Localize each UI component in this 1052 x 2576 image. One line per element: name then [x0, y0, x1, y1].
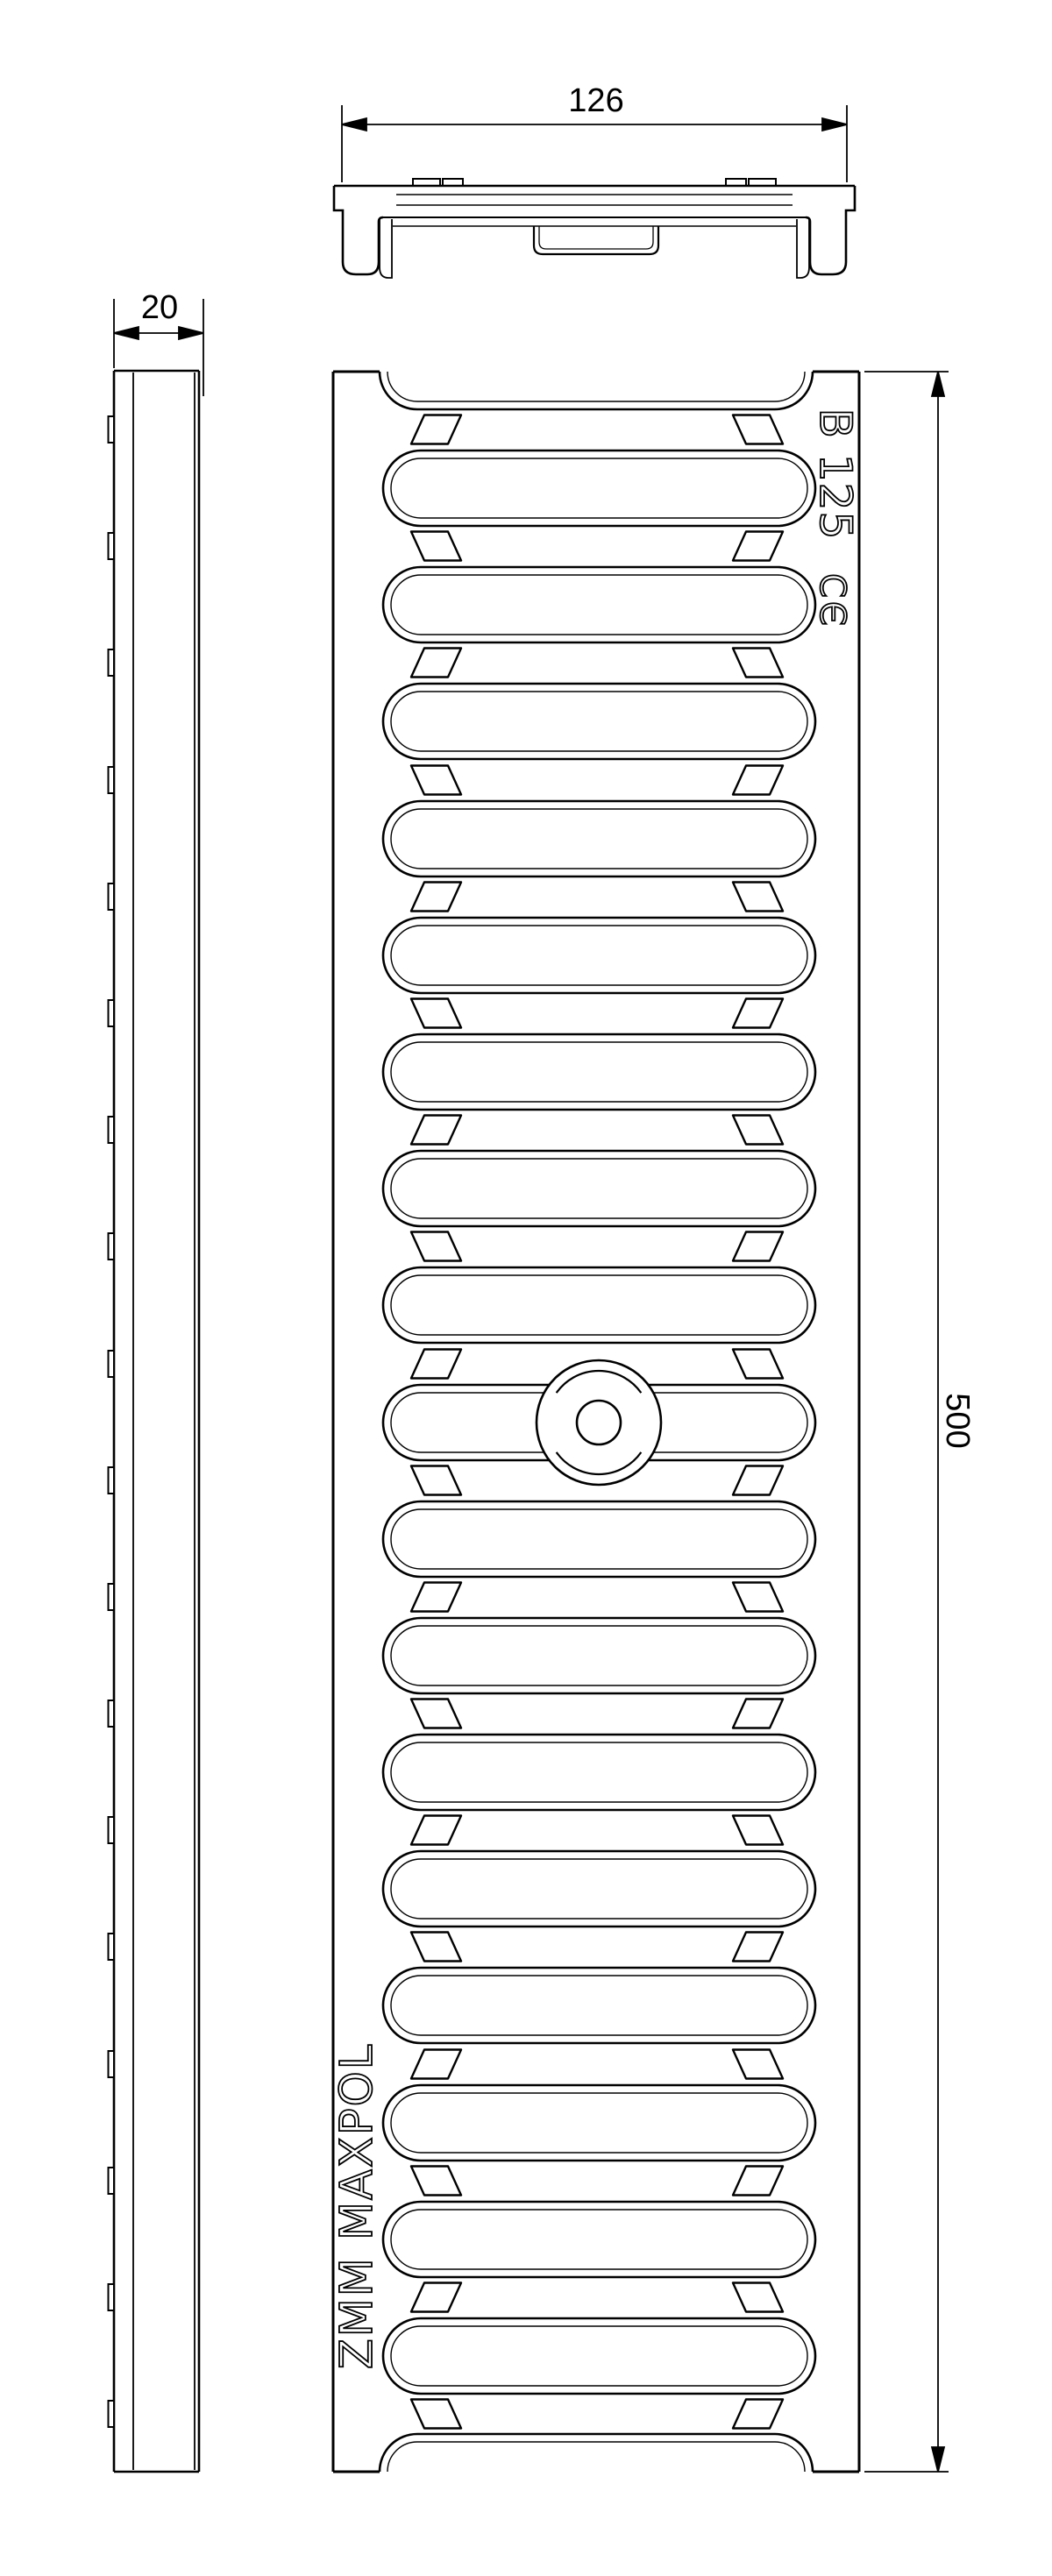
side-slot-tab — [109, 416, 115, 443]
diagonal-vent-left — [411, 415, 461, 444]
side-slot-tab — [109, 1351, 115, 1377]
diagonal-vent-left — [411, 532, 461, 561]
diagonal-vent-right — [733, 1933, 783, 1962]
drain-slot-rim — [391, 1159, 807, 1218]
side-slot-tab — [109, 1934, 115, 1960]
drain-slot-rim — [391, 1626, 807, 1685]
right-leg-inner — [797, 219, 809, 278]
drain-slot — [383, 918, 815, 993]
diagonal-vent-right — [733, 415, 783, 444]
center-lug-inner — [539, 226, 653, 249]
left-foot — [334, 186, 383, 274]
drain-slot-rim — [391, 809, 807, 869]
diagonal-vent-right — [733, 1583, 783, 1612]
half-slot-corner-arc-inner — [387, 372, 417, 401]
manufacturer-marking: ZMM MAXPOL — [331, 2043, 383, 2369]
side-slot-tab — [109, 2401, 115, 2427]
drain-slot — [383, 1618, 815, 1693]
half-slot-corner-arc — [775, 2434, 813, 2472]
half-slot-corner-arc-inner — [775, 2442, 805, 2472]
side-slot-tab — [109, 533, 115, 559]
drain-slot-rim — [391, 1742, 807, 1802]
front-section-view — [334, 179, 855, 278]
side-slot-tab — [109, 2168, 115, 2194]
diagonal-vent-left — [411, 2050, 461, 2079]
arrowhead-icon — [932, 372, 944, 396]
half-slot-corner-arc — [775, 372, 813, 409]
diagonal-vent-left — [411, 1116, 461, 1145]
drain-slot — [383, 567, 815, 642]
drain-slot-rim — [391, 458, 807, 518]
side-slot-tab — [109, 1700, 115, 1727]
diagonal-vent-left — [411, 883, 461, 912]
diagonal-vent-left — [411, 2400, 461, 2429]
side-view — [109, 371, 200, 2472]
drain-slot — [383, 1501, 815, 1577]
side-slot-tab — [109, 767, 115, 793]
grating-drawing: 126 20 500 B 125 CЄ ZMM MAXPOL — [0, 0, 1052, 2576]
diagonal-vent-right — [733, 1466, 783, 1495]
arrowhead-icon — [179, 327, 203, 339]
drain-slot-rim — [391, 2210, 807, 2269]
diagonal-vent-right — [733, 883, 783, 912]
side-slot-tab — [109, 2051, 115, 2077]
drain-slot — [383, 684, 815, 759]
drain-slot — [383, 451, 815, 526]
diagonal-vent-left — [411, 2283, 461, 2312]
drain-slot — [383, 1151, 815, 1226]
diagonal-vent-left — [411, 766, 461, 795]
drain-slot-rim — [391, 1042, 807, 1102]
load-class-marking: B 125 — [810, 408, 861, 541]
length-dimension — [864, 372, 949, 2472]
diagonal-vent-right — [733, 532, 783, 561]
drain-slot-rim — [391, 1509, 807, 1569]
diagonal-vent-right — [733, 1232, 783, 1261]
diagonal-vent-left — [411, 1700, 461, 1728]
drain-slot — [383, 2318, 815, 2394]
diagonal-vent-right — [733, 999, 783, 1028]
side-slot-tab — [109, 1000, 115, 1026]
diagonal-vent-left — [411, 649, 461, 678]
arrowhead-icon — [342, 118, 366, 131]
length-dimension-label: 500 — [939, 1393, 976, 1448]
drain-slot — [383, 1851, 815, 1927]
half-slot-corner-arc — [380, 2434, 417, 2472]
diagonal-vent-left — [411, 1350, 461, 1379]
diagonal-vent-right — [733, 2400, 783, 2429]
drain-slot-rim — [391, 926, 807, 985]
diagonal-vent-right — [733, 2050, 783, 2079]
arrowhead-icon — [822, 118, 847, 131]
drain-slot — [383, 801, 815, 876]
drain-slot-rim — [391, 2326, 807, 2386]
drain-slot-rim — [391, 1275, 807, 1335]
diagonal-vent-left — [411, 1232, 461, 1261]
ce-mark: CЄ — [812, 573, 852, 629]
drain-slot — [383, 2085, 815, 2161]
drain-slot-rim — [391, 692, 807, 751]
diagonal-vent-left — [411, 1816, 461, 1845]
arrowhead-icon — [932, 2447, 944, 2472]
width-dimension-label: 126 — [568, 82, 623, 119]
half-slot-corner-arc-inner — [387, 2442, 417, 2472]
center-lug — [534, 226, 658, 254]
diagonal-vent-right — [733, 1116, 783, 1145]
side-slot-tab — [109, 2284, 115, 2310]
side-slot-tab — [109, 1584, 115, 1610]
left-leg-inner — [380, 219, 392, 278]
drain-slot-rim — [391, 1976, 807, 2035]
plan-view — [333, 372, 859, 2472]
diagonal-vent-right — [733, 1700, 783, 1728]
locking-boss-pad — [537, 1360, 661, 1485]
diagonal-vent-left — [411, 2167, 461, 2196]
diagonal-vent-left — [411, 1933, 461, 1962]
half-slot-corner-arc — [380, 372, 417, 409]
drain-slot — [383, 2202, 815, 2277]
right-foot — [806, 186, 855, 274]
side-slot-tab — [109, 1467, 115, 1494]
drain-slot — [383, 1735, 815, 1810]
side-slot-tab — [109, 649, 115, 676]
technical-drawing-sheet: 126 20 500 B 125 CЄ ZMM MAXPOL — [0, 0, 1052, 2576]
diagonal-vent-right — [733, 649, 783, 678]
side-slot-tab — [109, 884, 115, 910]
drain-slot — [383, 1034, 815, 1110]
drain-slot-rim — [391, 575, 807, 635]
diagonal-vent-right — [733, 1816, 783, 1845]
diagonal-vent-right — [733, 2167, 783, 2196]
side-slot-tab — [109, 1233, 115, 1260]
side-slot-tab — [109, 1117, 115, 1143]
thickness-dimension-label: 20 — [141, 289, 178, 326]
diagonal-vent-right — [733, 2283, 783, 2312]
diagonal-vent-right — [733, 766, 783, 795]
drain-slot — [383, 1968, 815, 2043]
drain-slot — [383, 1267, 815, 1343]
diagonal-vent-left — [411, 999, 461, 1028]
half-slot-corner-arc-inner — [775, 372, 805, 401]
diagonal-vent-left — [411, 1466, 461, 1495]
diagonal-vent-left — [411, 1583, 461, 1612]
diagonal-vent-right — [733, 1350, 783, 1379]
side-slot-tab — [109, 1817, 115, 1843]
drain-slot-rim — [391, 2093, 807, 2153]
arrowhead-icon — [114, 327, 139, 339]
drain-slot-rim — [391, 1859, 807, 1919]
